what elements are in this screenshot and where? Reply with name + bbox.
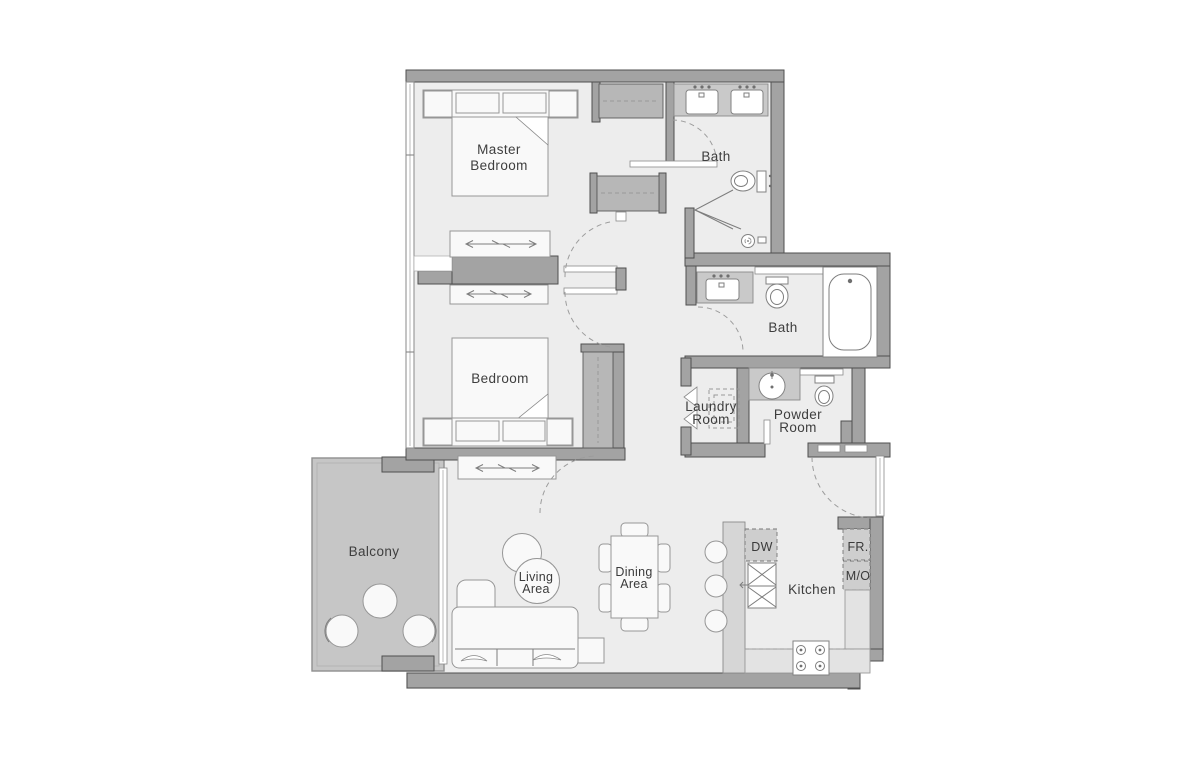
wall-between-bedrooms [452, 256, 558, 284]
bar-stool [705, 575, 727, 597]
appliance-label-mo: M/O [846, 569, 871, 583]
toilet-icon [815, 376, 834, 406]
door-jamb [616, 268, 626, 290]
wall-bath2-top [685, 253, 890, 266]
balcony-chair [325, 615, 358, 647]
closet-mid [597, 176, 659, 211]
stove-icon [793, 641, 829, 675]
appliance-label-dw: DW [751, 540, 772, 554]
drain-fitting [758, 237, 766, 243]
wall-top [406, 70, 784, 82]
room-label-bedroom: Bedroom [471, 371, 529, 386]
room-label-bath-top: Bath [701, 149, 730, 164]
room-label-dining: Area [620, 577, 648, 591]
dining-chair [657, 584, 670, 612]
dining-chair [657, 544, 670, 572]
dining-chair [621, 523, 648, 537]
room-label-balcony: Balcony [349, 544, 400, 559]
sink-icon [686, 90, 718, 114]
balcony-wall-block-bottom [382, 656, 434, 671]
wall-bottom [407, 673, 860, 688]
balcony-chair [403, 615, 436, 647]
wall-closet-right [613, 352, 624, 456]
kitchen-island [723, 522, 745, 673]
toilet-icon [731, 171, 771, 192]
door-jamb [616, 212, 626, 221]
door-leaf [564, 288, 617, 294]
counter-right [845, 590, 870, 649]
dining-chair [599, 584, 612, 612]
sink-icon [706, 279, 739, 300]
entry-door-panel [845, 445, 867, 452]
appliance-label-fr: FR. [847, 540, 868, 554]
floor-plan: Master Bedroom Bath Bedroom Bath Laundry… [0, 0, 1200, 762]
room-label-master-bedroom: Bedroom [470, 158, 528, 173]
sink-icon [731, 90, 763, 114]
room-label-kitchen: Kitchen [788, 582, 836, 597]
shelf [800, 369, 843, 375]
room-label-master-bedroom: Master [477, 142, 521, 157]
wall-powder-right [852, 368, 865, 443]
wall-powder-bottom-left [685, 443, 765, 457]
shelf [755, 267, 827, 274]
balcony-table [363, 584, 397, 618]
bar-stool [705, 610, 727, 632]
bar-stool [705, 541, 727, 563]
door-leaf [764, 420, 770, 444]
wall-bath2-bottom [685, 356, 890, 368]
door-leaf [564, 266, 617, 272]
dining-chair [621, 617, 648, 631]
bathtub-icon [823, 267, 877, 357]
toilet-icon [766, 277, 788, 308]
pillow [456, 421, 499, 441]
wall-laundry-right [737, 368, 749, 443]
room-label-bath-middle: Bath [768, 320, 797, 335]
floor-plan-canvas: Master Bedroom Bath Bedroom Bath Laundry… [0, 0, 1200, 762]
wall-kitchen-right [870, 517, 883, 661]
wall-right-upper [771, 82, 784, 265]
dining-chair [599, 544, 612, 572]
side-table [578, 638, 604, 663]
room-label-laundry: Room [692, 412, 730, 427]
wall-bath2-right [877, 266, 890, 368]
nightstand [424, 91, 452, 117]
wall-bath1-left [666, 82, 674, 164]
room-label-powder: Room [779, 420, 817, 435]
nightstand [549, 91, 577, 117]
pillow [503, 93, 546, 113]
entry-door-panel [818, 445, 840, 452]
pillow [503, 421, 545, 441]
nightstand [547, 419, 572, 445]
nightstand [424, 419, 452, 445]
pillow [456, 93, 499, 113]
balcony-sliding-door [439, 468, 447, 664]
room-label-living: Area [522, 582, 550, 596]
